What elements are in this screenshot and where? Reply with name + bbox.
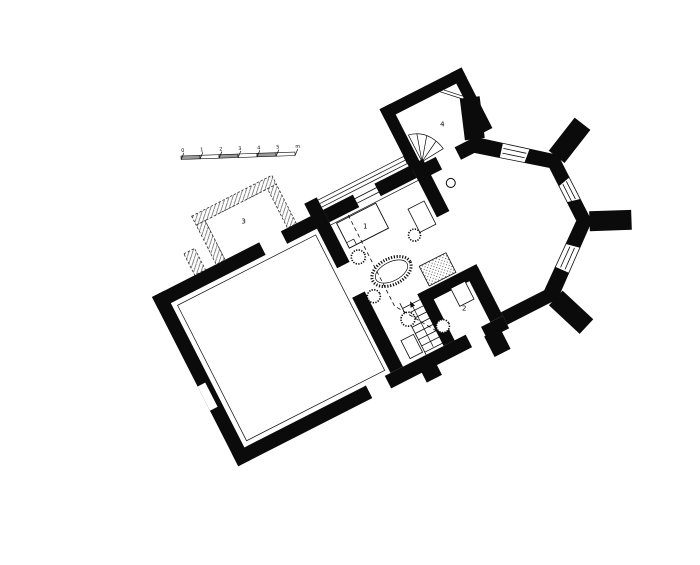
bench [401,334,423,358]
masonry-walls [123,67,586,483]
scale-tick-label: 3 [238,146,241,152]
scale-tick-label: 2 [219,147,222,153]
floor-plan-page: 0 1 2 3 4 5 m [0,0,700,565]
scale-bar-segments [181,152,295,159]
apse-piers [467,107,616,303]
stair-direction-arrow [408,300,415,308]
room-label-2: 2 [462,305,466,313]
font-circle [445,177,457,189]
oval-table [367,250,416,292]
scale-tick-label: 4 [257,145,260,151]
room-label-1: 1 [363,223,367,231]
building-plan: 1 2 3 4 [123,28,671,499]
scale-tick-label: 1 [200,147,203,153]
scale-tick-label: 0 [181,148,184,154]
room-label-4: 4 [440,121,445,129]
scale-bar: 0 1 2 3 4 5 m [181,144,301,160]
scale-tick-label: 5 [276,145,279,151]
floor-plan-figure: 0 1 2 3 4 5 m [0,0,700,565]
room-label-3: 3 [241,217,245,225]
scale-tick-label: m [295,144,300,150]
